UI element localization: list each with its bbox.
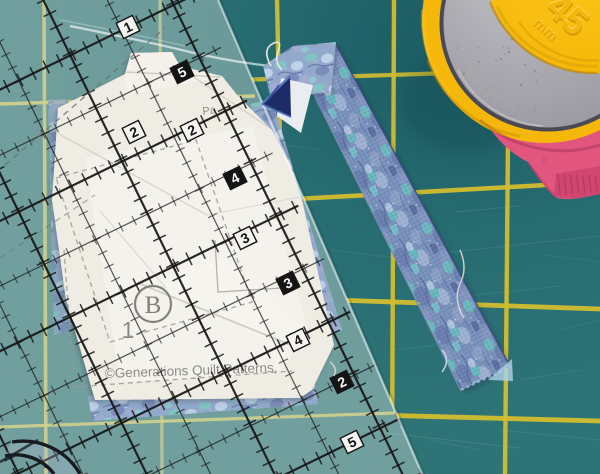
svg-text:1: 1 — [122, 317, 135, 343]
svg-text:B: B — [145, 292, 162, 319]
